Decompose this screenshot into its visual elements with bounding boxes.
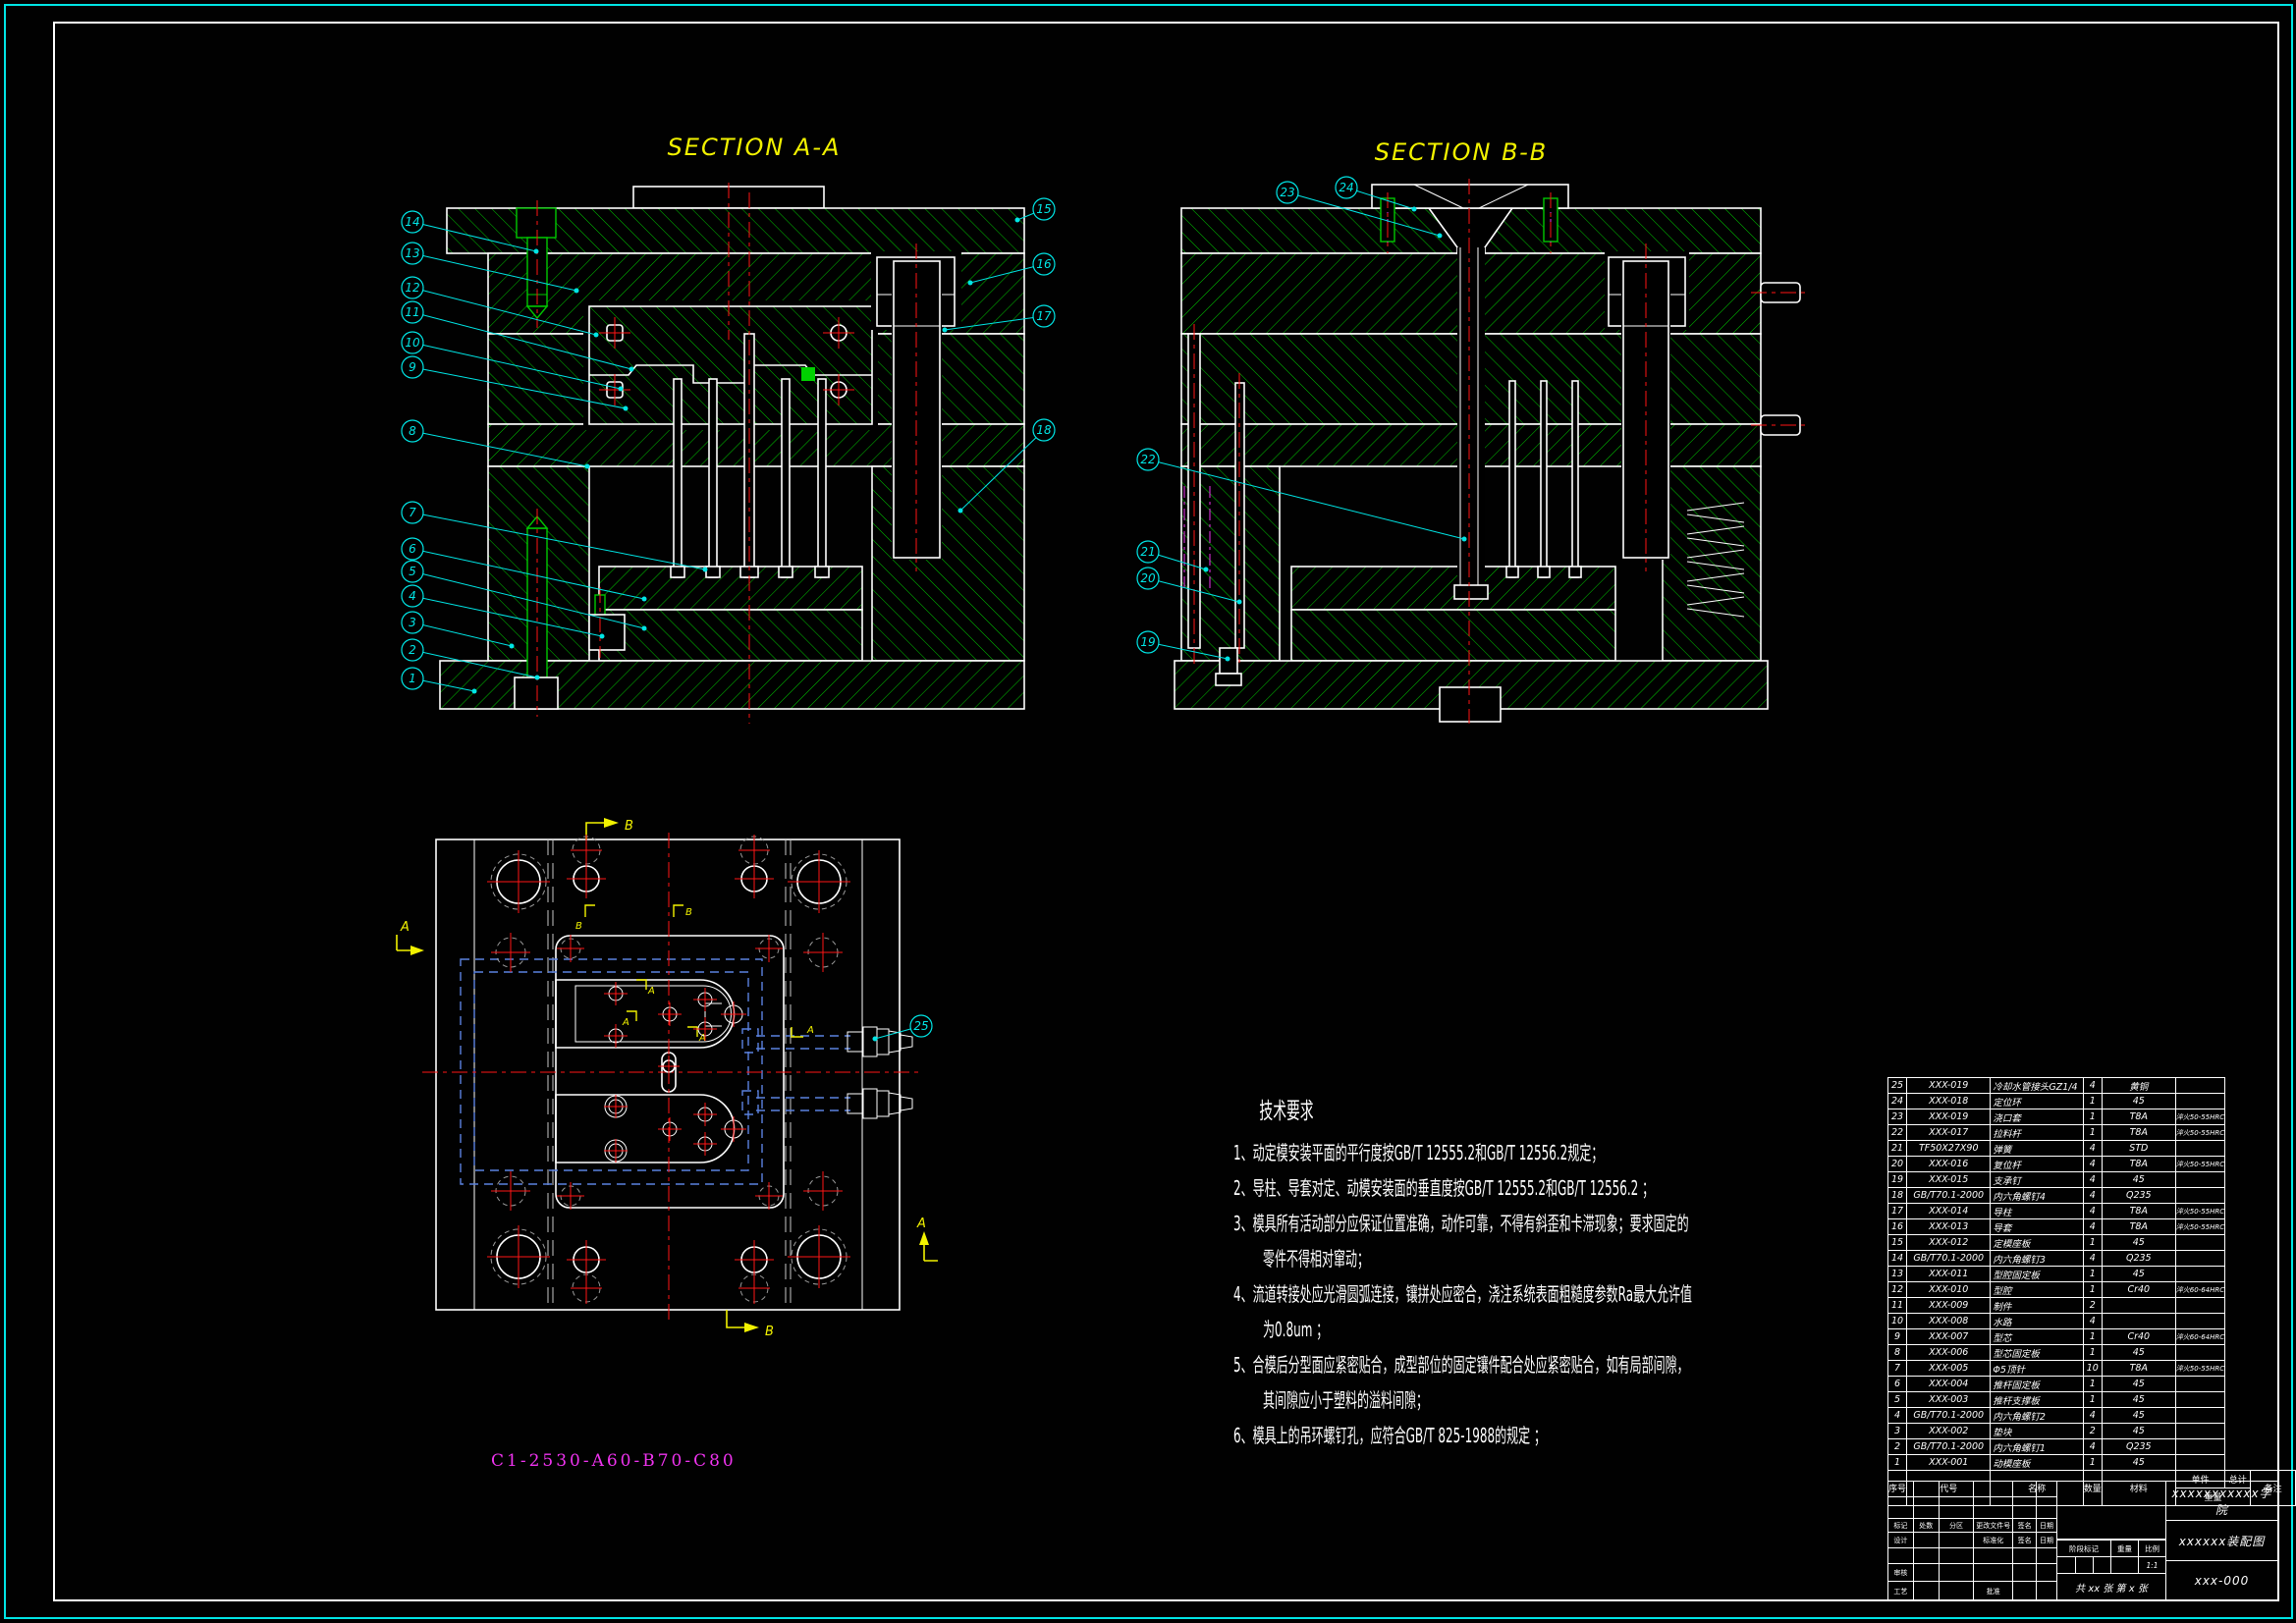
bom-row: 21TF50X27X90弹簧4STD (1888, 1141, 2296, 1157)
bom-row: 1XXX-001动模座板145 (1888, 1455, 2296, 1471)
bom-row: 3XXX-002垫块245 (1888, 1424, 2296, 1439)
bom-row: 13XXX-011型腔固定板145 (1888, 1267, 2296, 1282)
bom-row: 16XXX-013导套4T8A淬火50-55HRC (1888, 1219, 2296, 1235)
bom-table: 25XXX-019冷却水管接头GZ1/44黄铜24XXX-018定位环14523… (1887, 1077, 2296, 1506)
bom-row: 19XXX-015支承钉445 (1888, 1172, 2296, 1188)
svg-text:11: 11 (405, 305, 419, 319)
bom-row: 7XXX-005Φ5顶针10T8A淬火50-55HRC (1888, 1361, 2296, 1377)
bom-row: 6XXX-004推杆固定板145 (1888, 1377, 2296, 1392)
bom-row: 2GB/T70.1-2000内六角螺钉14Q235 (1888, 1439, 2296, 1455)
svg-text:7: 7 (409, 506, 416, 519)
tech-requirement-line: 5、合模后分型面应紧密贴合，成型部位的固定镶件配合处应紧密贴合，如有局部间隙， (1233, 1347, 1693, 1382)
svg-text:B: B (575, 921, 582, 932)
svg-text:16: 16 (1036, 257, 1052, 271)
section-marks: B B A A B B A A A A (397, 818, 938, 1339)
title-block-left-grid: 标记处数 分区更改文件号 签名日期 设计 标准化 签名日期 审核 工艺批准 (1887, 1481, 2057, 1601)
tech-requirement-line: 4、流道转接处应光滑圆弧连接，镶拼处应密合，浇注系统表面粗糙度参数Ra最大允许值 (1233, 1276, 1693, 1312)
svg-text:2: 2 (409, 643, 416, 657)
section-aa-label: SECTION A-A (668, 134, 842, 161)
svg-text:24: 24 (1339, 181, 1353, 194)
svg-text:B: B (765, 1325, 774, 1339)
tech-requirements-lines: 1、动定模安装平面的平行度按GB/T 12555.2和GB/T 12556.2规… (1233, 1135, 1693, 1453)
svg-text:21: 21 (1140, 545, 1155, 559)
bom-row: 9XXX-007型芯1Cr40淬火60-64HRC (1888, 1329, 2296, 1345)
svg-text:A: A (647, 986, 655, 997)
drawing-title: xxxxxx装配图 (2165, 1520, 2278, 1561)
bom-row: 8XXX-006型芯固定板145 (1888, 1345, 2296, 1361)
svg-text:5: 5 (409, 565, 416, 578)
sprue-channel (1454, 247, 1488, 599)
svg-text:A: A (916, 1217, 926, 1231)
bom-row: 5XXX-003推杆支撑板145 (1888, 1392, 2296, 1408)
svg-text:18: 18 (1036, 423, 1052, 437)
bom-row: 10XXX-008水路4 (1888, 1314, 2296, 1329)
drawing-number: xxx-000 (2165, 1560, 2278, 1600)
mold-base-code: C1-2530-A60-B70-C80 (491, 1451, 737, 1471)
sheet-note: 共 xx 张 第 x 张 (2056, 1573, 2166, 1600)
svg-text:A: A (400, 920, 410, 935)
section-bb-view: SECTION B-B (1175, 138, 1810, 724)
svg-text:23: 23 (1280, 186, 1294, 199)
svg-text:25: 25 (913, 1019, 928, 1033)
svg-text:10: 10 (405, 336, 420, 350)
svg-text:22: 22 (1140, 453, 1155, 466)
water-hose-bottom (847, 1089, 912, 1118)
svg-text:13: 13 (405, 246, 419, 260)
section-bb-label: SECTION B-B (1375, 138, 1549, 166)
cavity-outline-bottom (556, 1095, 735, 1163)
tech-requirement-line: 1、动定模安装平面的平行度按GB/T 12555.2和GB/T 12556.2规… (1233, 1135, 1693, 1170)
cad-drawing-sheet: SECTION A-A (0, 0, 2296, 1623)
section-aa-view: SECTION A-A (440, 134, 1024, 724)
svg-text:B: B (625, 819, 633, 834)
scale-value: 1:1 (2138, 1556, 2166, 1574)
svg-text:1: 1 (409, 672, 416, 685)
bom-row: 17XXX-014导柱4T8A淬火50-55HRC (1888, 1204, 2296, 1219)
tech-requirements: 技术要求 1、动定模安装平面的平行度按GB/T 12555.2和GB/T 125… (1233, 1092, 1693, 1453)
bom-body: 25XXX-019冷却水管接头GZ1/44黄铜24XXX-018定位环14523… (1888, 1078, 2296, 1471)
bom-row: 12XXX-010型腔1Cr40淬火60-64HRC (1888, 1282, 2296, 1298)
tech-requirement-line: 3、模具所有活动部分应保证位置准确，动作可靠，不得有斜歪和卡滞现象；要求固定的 (1233, 1206, 1693, 1241)
svg-text:12: 12 (405, 281, 419, 295)
tech-requirement-line: 为0.8um ； (1233, 1312, 1693, 1347)
svg-text:A: A (622, 1017, 629, 1028)
svg-text:4: 4 (409, 589, 416, 603)
svg-text:17: 17 (1036, 309, 1052, 323)
bom-row: 14GB/T70.1-2000内六角螺钉34Q235 (1888, 1251, 2296, 1267)
cavity-outline-top (556, 980, 735, 1048)
bom-row: 11XXX-009制件2 (1888, 1298, 2296, 1314)
svg-text:14: 14 (405, 215, 419, 229)
svg-text:9: 9 (409, 360, 416, 374)
svg-text:8: 8 (409, 424, 416, 438)
svg-text:20: 20 (1140, 571, 1156, 585)
svg-text:19: 19 (1140, 635, 1155, 649)
bottom-boss (1440, 687, 1501, 722)
tech-requirement-line: 零件不得相对窜动； (1233, 1241, 1693, 1276)
school-name: xxxxxxxxxxx学院 (2165, 1481, 2278, 1521)
bom-row: 18GB/T70.1-2000内六角螺钉44Q235 (1888, 1188, 2296, 1204)
bom-row: 22XXX-017拉料杆1T8A淬火50-55HRC (1888, 1125, 2296, 1141)
svg-text:B: B (685, 907, 692, 918)
bom-row: 23XXX-019浇口套1T8A淬火50-55HRC (1888, 1109, 2296, 1125)
svg-text:15: 15 (1036, 202, 1051, 216)
tech-requirement-line: 6、模具上的吊环螺钉孔，应符合GB/T 825-1988的规定 ； (1233, 1418, 1693, 1453)
plan-view: B B A A B B A A A A (397, 818, 938, 1339)
gate-insert (801, 367, 815, 381)
svg-text:3: 3 (409, 616, 416, 629)
bom-row: 24XXX-018定位环145 (1888, 1094, 2296, 1109)
tech-requirements-title: 技术要求 (1233, 1092, 1693, 1125)
svg-text:6: 6 (409, 542, 416, 556)
bom-row: 25XXX-019冷却水管接头GZ1/44黄铜 (1888, 1078, 2296, 1094)
bom-row: 20XXX-016复位杆4T8A淬火50-55HRC (1888, 1157, 2296, 1172)
bom-row: 4GB/T70.1-2000内六角螺钉2445 (1888, 1408, 2296, 1424)
title-block: 标记处数 分区更改文件号 签名日期 设计 标准化 签名日期 审核 工艺批准 阶段… (1887, 1481, 2278, 1600)
support-pin (1216, 648, 1241, 685)
tech-requirement-line: 其间隙应小于塑料的溢料间隙； (1233, 1382, 1693, 1418)
tech-requirement-line: 2、导柱、导套对定、动模安装面的垂直度按GB/T 12555.2和GB/T 12… (1233, 1170, 1693, 1206)
bom-row: 15XXX-012定模座板145 (1888, 1235, 2296, 1251)
svg-text:A: A (806, 1025, 814, 1036)
